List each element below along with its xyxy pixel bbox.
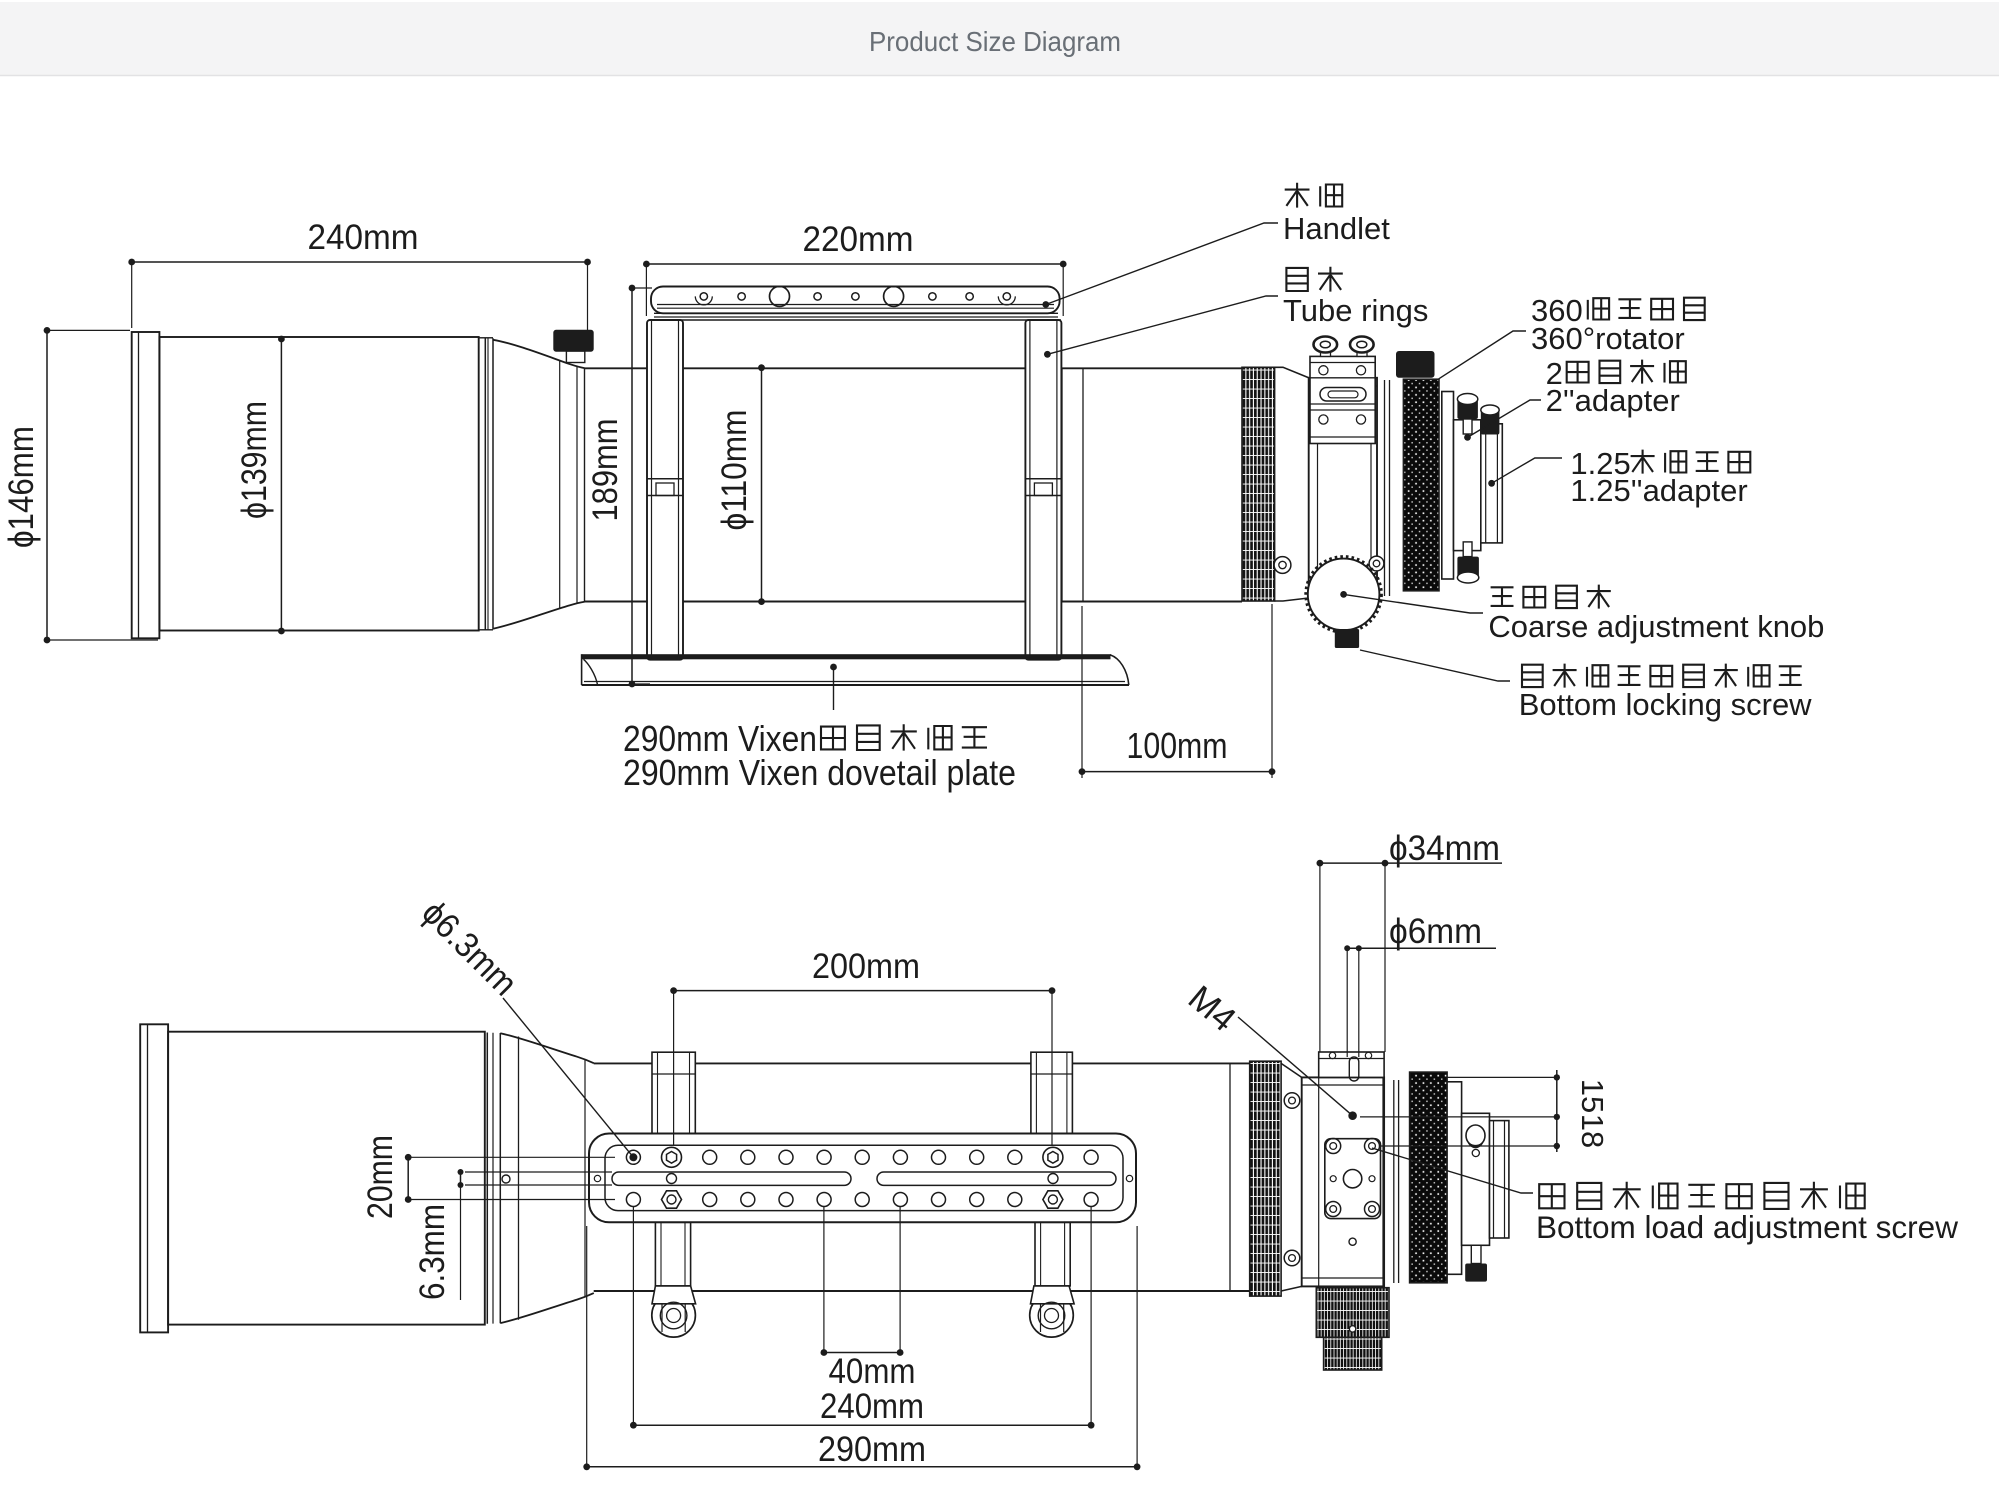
svg-text:Bottom load adjustment screw: Bottom load adjustment screw — [1536, 1209, 1958, 1245]
svg-text:ϕ110mm: ϕ110mm — [715, 410, 754, 531]
svg-text:15: 15 — [1575, 1079, 1610, 1113]
svg-text:ϕ139mm: ϕ139mm — [235, 401, 274, 519]
svg-text:Handlet: Handlet — [1283, 211, 1390, 246]
svg-text:200mm: 200mm — [812, 947, 920, 986]
svg-text:189mm: 189mm — [586, 419, 625, 522]
svg-text:Product Size Diagram: Product Size Diagram — [869, 26, 1121, 57]
svg-text:20mm: 20mm — [361, 1135, 400, 1219]
svg-text:ϕ146mm: ϕ146mm — [2, 426, 41, 548]
svg-text:220mm: 220mm — [803, 220, 914, 259]
svg-text:Coarse adjustment knob: Coarse adjustment knob — [1488, 609, 1824, 644]
svg-text:290mm Vixen dovetail plate: 290mm Vixen dovetail plate — [623, 752, 1016, 793]
svg-text:240mm: 240mm — [820, 1387, 924, 1426]
svg-text:290mm: 290mm — [818, 1430, 926, 1469]
svg-text:6.3mm: 6.3mm — [413, 1204, 452, 1300]
svg-text:18: 18 — [1575, 1114, 1610, 1148]
svg-text:40mm: 40mm — [829, 1352, 916, 1391]
svg-text:240mm: 240mm — [308, 218, 419, 257]
svg-text:Tube rings: Tube rings — [1283, 293, 1428, 328]
svg-text:Bottom locking screw: Bottom locking screw — [1519, 687, 1812, 722]
svg-text:ϕ6mm: ϕ6mm — [1389, 912, 1482, 951]
svg-text:2''adapter: 2''adapter — [1546, 383, 1680, 418]
svg-text:1.25''adapter: 1.25''adapter — [1570, 473, 1747, 508]
svg-text:ϕ34mm: ϕ34mm — [1389, 829, 1500, 868]
svg-text:360°rotator: 360°rotator — [1531, 321, 1685, 356]
svg-text:100mm: 100mm — [1127, 725, 1228, 766]
